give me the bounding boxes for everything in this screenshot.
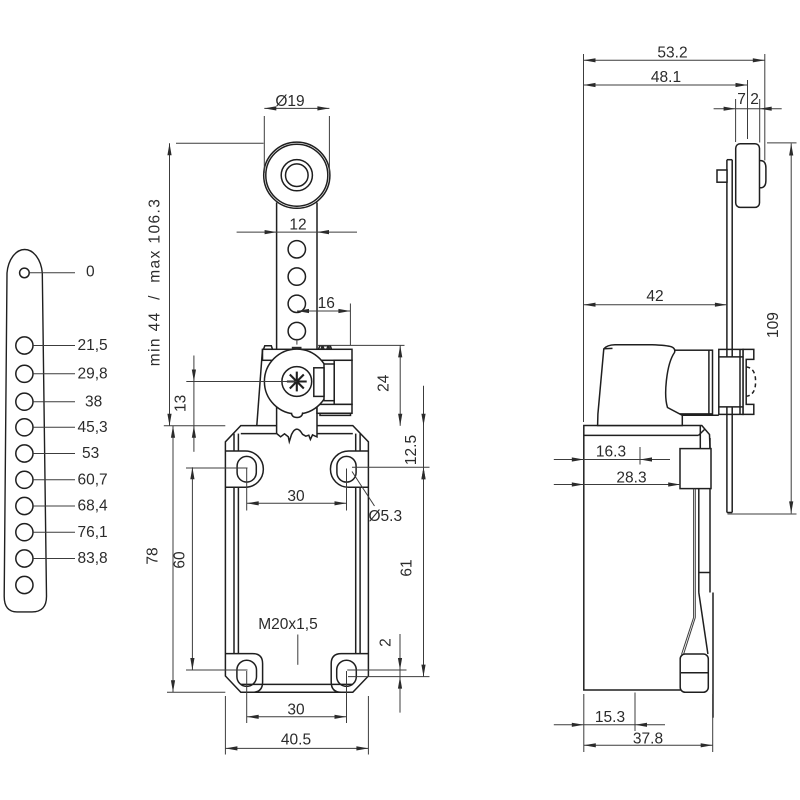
svg-text:30: 30 [287, 488, 305, 505]
svg-text:60,7: 60,7 [78, 471, 108, 488]
svg-text:53: 53 [82, 445, 99, 462]
svg-text:48.1: 48.1 [651, 69, 681, 86]
svg-text:83,8: 83,8 [78, 550, 108, 567]
svg-text:60: 60 [171, 551, 188, 569]
svg-text:16.3: 16.3 [596, 444, 626, 461]
svg-text:2: 2 [750, 91, 759, 108]
svg-text:21,5: 21,5 [78, 337, 108, 354]
svg-text:61: 61 [399, 559, 416, 576]
svg-text:12.5: 12.5 [403, 435, 420, 465]
svg-text:78: 78 [145, 547, 162, 564]
svg-text:76,1: 76,1 [78, 524, 108, 541]
svg-text:Ø5.3: Ø5.3 [369, 508, 403, 525]
svg-text:Ø19: Ø19 [275, 93, 304, 110]
svg-text:53.2: 53.2 [657, 45, 687, 62]
svg-text:16: 16 [318, 295, 335, 312]
svg-text:45,3: 45,3 [78, 419, 108, 436]
svg-text:109: 109 [765, 312, 782, 338]
svg-text:28.3: 28.3 [616, 470, 646, 487]
svg-text:min 44 / max 106.3: min 44 / max 106.3 [147, 198, 164, 366]
svg-text:42: 42 [646, 288, 663, 305]
svg-text:37.8: 37.8 [633, 731, 663, 748]
svg-text:40.5: 40.5 [281, 732, 311, 749]
svg-text:12: 12 [289, 217, 306, 234]
svg-text:38: 38 [85, 393, 102, 410]
svg-text:2: 2 [378, 638, 395, 647]
svg-text:68,4: 68,4 [78, 498, 109, 515]
svg-text:13: 13 [172, 395, 189, 412]
svg-text:M20x1,5: M20x1,5 [258, 616, 317, 633]
svg-text:0: 0 [86, 264, 95, 281]
svg-text:29,8: 29,8 [78, 365, 108, 382]
svg-text:15.3: 15.3 [595, 709, 625, 726]
svg-text:24: 24 [376, 374, 393, 392]
svg-text:7: 7 [737, 91, 746, 108]
svg-text:30: 30 [287, 702, 305, 719]
